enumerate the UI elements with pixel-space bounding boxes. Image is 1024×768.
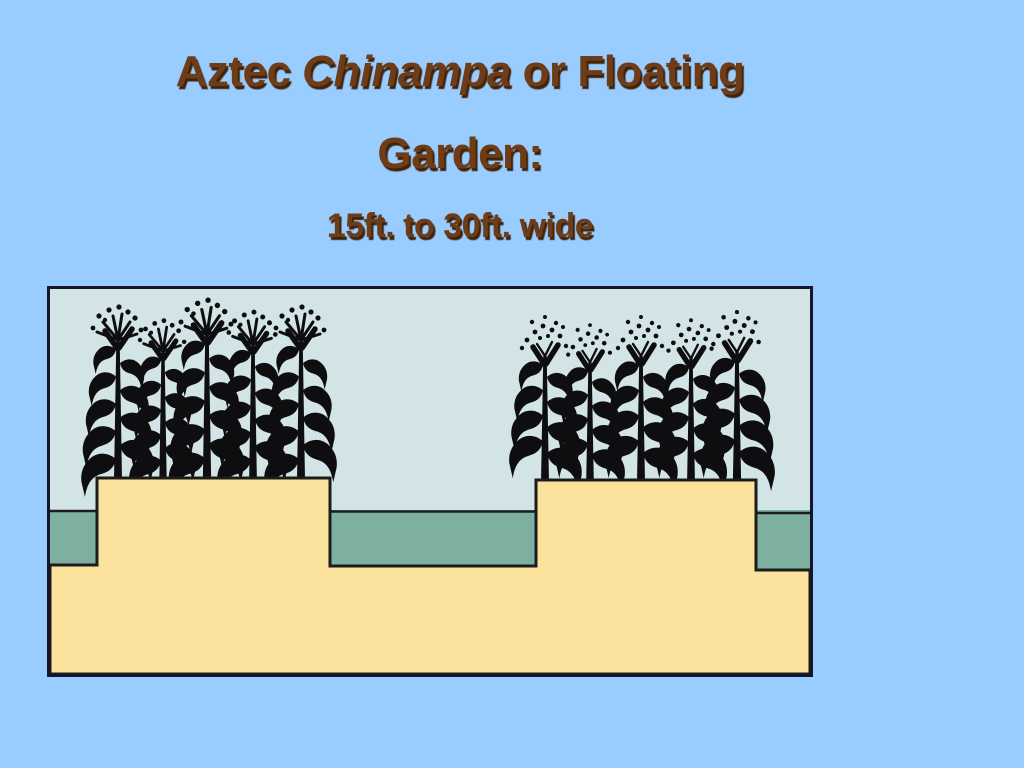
chinampa-cross-section-illustration <box>50 289 810 674</box>
title-part1: Aztec <box>176 47 303 96</box>
presentation-slide: Aztec Chinampa or Floating Garden: 15ft.… <box>0 0 1024 768</box>
slide-title-line2: Garden: <box>40 122 880 186</box>
slide-subtitle: 15ft. to 30ft. wide <box>40 204 880 248</box>
title-part3: or Floating <box>511 47 745 96</box>
slide-title-line1: Aztec Chinampa or Floating <box>40 40 880 104</box>
title-part2-italic: Chinampa <box>302 47 511 96</box>
corn-plants-left-bed <box>81 297 337 497</box>
chinampa-illustration-frame <box>47 286 813 677</box>
